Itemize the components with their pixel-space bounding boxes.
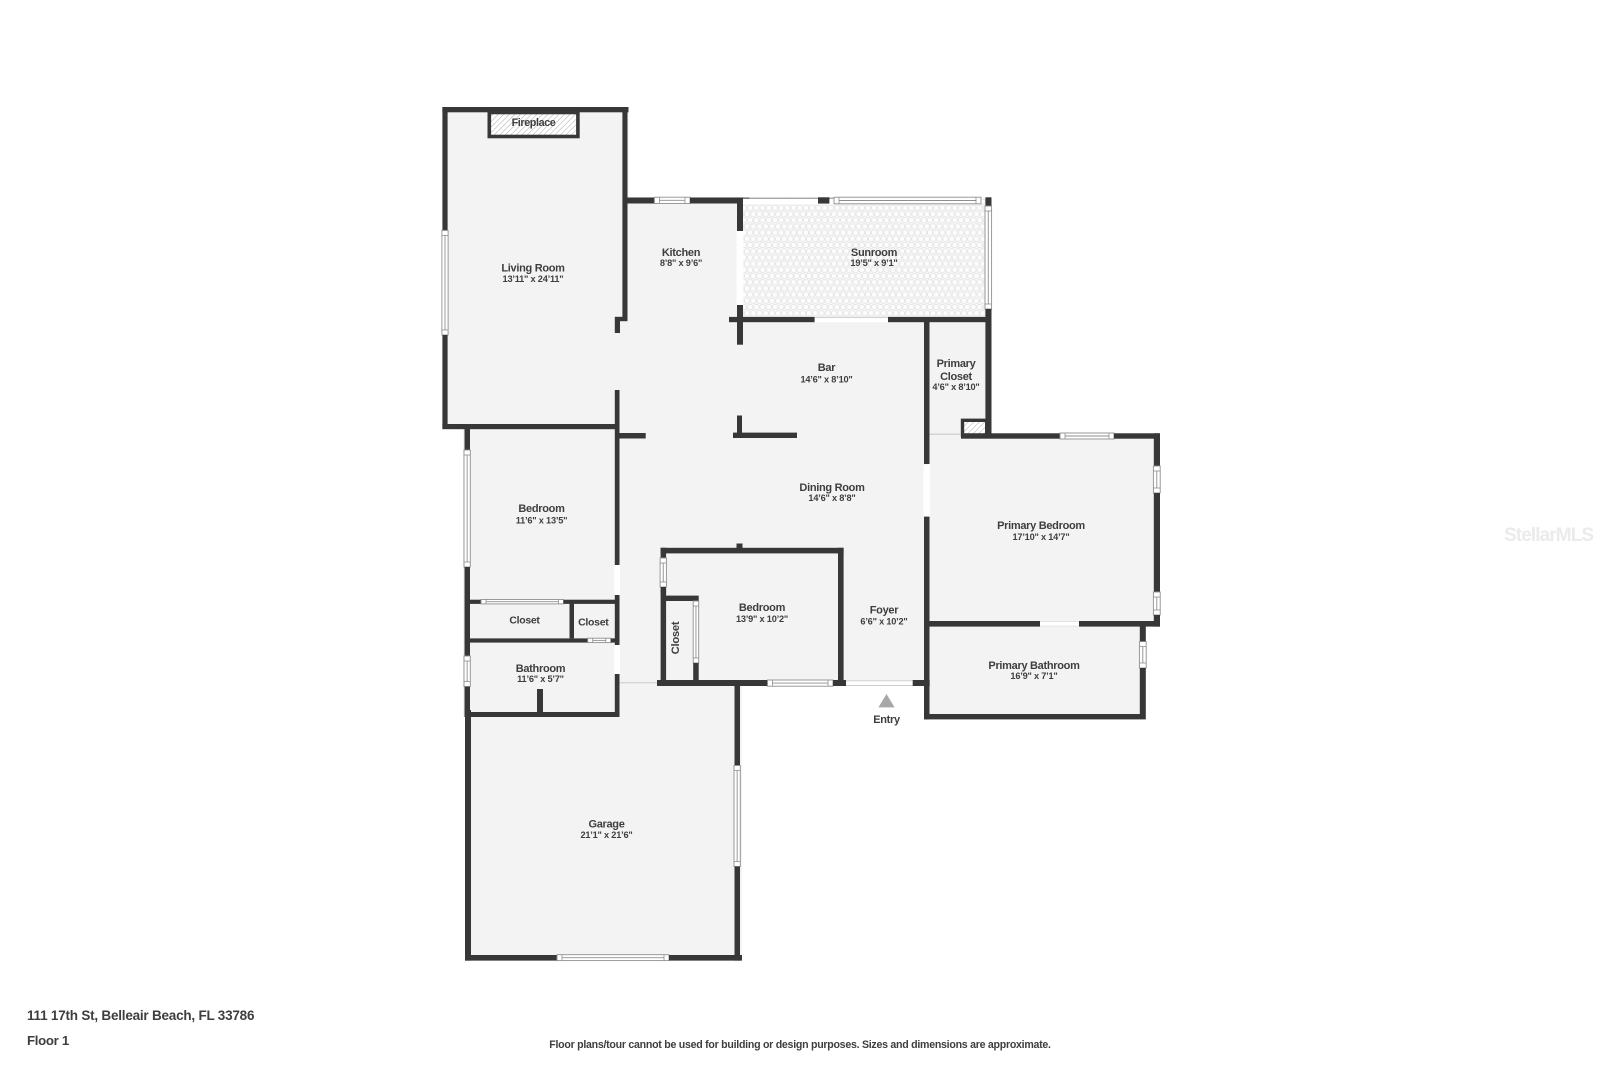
svg-text:11’6" x 5’7": 11’6" x 5’7": [517, 674, 564, 684]
svg-text:17’10" x 14’7": 17’10" x 14’7": [1013, 532, 1070, 542]
svg-text:Closet: Closet: [670, 621, 682, 654]
svg-text:13’11" x 24’11": 13’11" x 24’11": [503, 274, 564, 284]
svg-text:Bar: Bar: [818, 362, 836, 374]
svg-text:11’6" x 13’5": 11’6" x 13’5": [516, 516, 568, 526]
svg-text:Bedroom: Bedroom: [518, 503, 565, 515]
svg-text:Bedroom: Bedroom: [739, 602, 786, 614]
svg-text:Foyer: Foyer: [870, 605, 899, 617]
svg-text:Entry: Entry: [873, 714, 901, 726]
svg-text:4’6" x 8’10": 4’6" x 8’10": [932, 382, 979, 392]
svg-text:8’8" x 9’6": 8’8" x 9’6": [660, 258, 702, 268]
svg-text:Fireplace: Fireplace: [512, 117, 556, 129]
svg-text:Floor plans/tour cannot be use: Floor plans/tour cannot be used for buil…: [549, 1039, 1051, 1051]
svg-text:19’5" x 9’1": 19’5" x 9’1": [850, 258, 897, 268]
svg-text:Garage: Garage: [588, 819, 624, 831]
svg-text:Closet: Closet: [509, 615, 540, 627]
svg-text:14’6" x 8’10": 14’6" x 8’10": [800, 375, 852, 385]
svg-text:16’9" x 7’1": 16’9" x 7’1": [1010, 671, 1057, 681]
svg-text:14’6" x 8’8": 14’6" x 8’8": [808, 493, 855, 503]
svg-text:Primary: Primary: [937, 358, 977, 370]
svg-text:13’9" x 10’2": 13’9" x 10’2": [736, 614, 788, 624]
svg-text:6’6" x 10’2": 6’6" x 10’2": [860, 617, 907, 627]
svg-text:21’1" x 21’6": 21’1" x 21’6": [580, 830, 632, 840]
svg-text:StellarMLS: StellarMLS: [1504, 525, 1593, 546]
svg-text:Primary Bedroom: Primary Bedroom: [997, 520, 1085, 532]
svg-text:111 17th St, Belleair Beach, F: 111 17th St, Belleair Beach, FL 33786: [27, 1008, 255, 1023]
svg-text:Floor 1: Floor 1: [27, 1033, 69, 1048]
svg-text:Closet: Closet: [578, 617, 609, 629]
svg-text:Living Room: Living Room: [501, 263, 565, 275]
